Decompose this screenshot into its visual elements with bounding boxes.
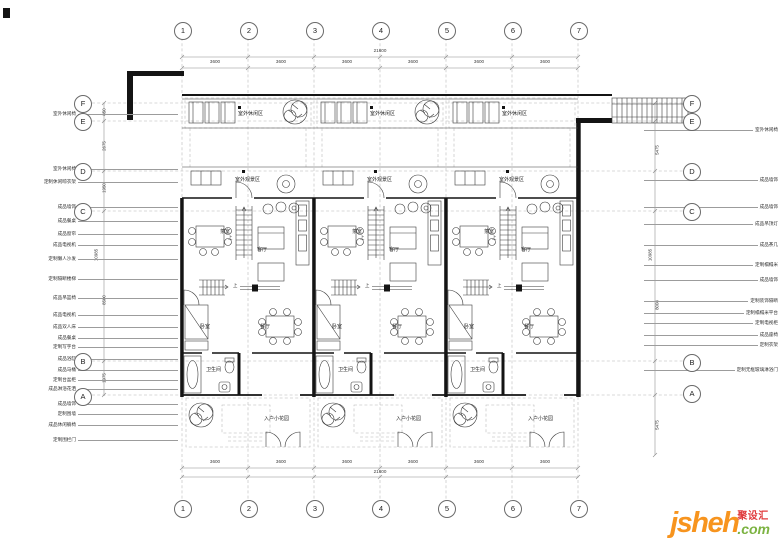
leader-line [78, 338, 178, 339]
grid-bubble-col-2: 2 [240, 22, 258, 40]
room-label-bedroom: 卧室 [200, 323, 210, 330]
leader-line [644, 130, 753, 131]
room-label-dining: 餐厅 [524, 323, 534, 330]
watermark-logo: jsheh 聚设汇 .com [670, 510, 770, 536]
grid-bubble-col-4-bottom: 4 [372, 500, 390, 518]
grid-bubble-col-4: 4 [372, 22, 390, 40]
grid-bubble-col-5: 5 [438, 22, 456, 40]
room-label-living: 客厅 [257, 246, 267, 253]
annotation-label: 成品吊篮椅 [2, 295, 76, 301]
annotation-label: 定制隔断楼梯 [2, 276, 76, 282]
annotation-row: 成品电视机 [2, 312, 180, 318]
leader-line [644, 301, 748, 302]
leader-line [78, 221, 178, 222]
leader-line [644, 313, 744, 314]
leader-line [78, 347, 178, 348]
annotation-label: 成品墙饰 [760, 277, 778, 283]
stair-up-label: 上 [228, 235, 232, 241]
leader-line [644, 323, 753, 324]
leader-line [78, 182, 178, 183]
room-label-outdoor-leisure: 室外休闲区 [502, 110, 527, 117]
annotation-label: 成品墙饰 [2, 204, 76, 210]
annotation-label: 定制无框玻璃淋浴门 [737, 367, 778, 373]
leader-line [78, 207, 178, 208]
grid-bubble-col-7: 7 [570, 22, 588, 40]
annotation-label: 定制台盆柜 [2, 377, 76, 383]
leader-line [78, 389, 178, 390]
room-label-outdoor-leisure: 室外休闲区 [238, 110, 263, 117]
leader-line [644, 345, 758, 346]
grid-bubble-col-2-bottom: 2 [240, 500, 258, 518]
annotation-label: 成品浴缸 [2, 356, 76, 362]
annotation-row: 定制无框玻璃淋浴门 [642, 367, 778, 373]
watermark-domain: .com [737, 522, 770, 536]
annotation-label: 室外休闲椅 [2, 166, 76, 172]
annotation-label: 定制围栏门 [2, 437, 76, 443]
grid-bubble-row-D-right: D [683, 163, 701, 181]
leader-line [78, 404, 178, 405]
grid-bubble-row-F-right: F [683, 95, 701, 113]
annotation-row: 成品墙饰 [2, 401, 180, 407]
annotation-label: 定制衣架 [760, 342, 778, 348]
annotation-row: 室外休闲椅 [642, 127, 778, 133]
grid-bubble-row-E-right: E [683, 113, 701, 131]
leader-line [644, 335, 758, 336]
room-label-bath: 卫生间 [206, 366, 221, 373]
annotation-label: 定制写字台 [2, 344, 76, 350]
room-label-tea: 茶室 [220, 228, 230, 235]
annotation-label: 成品吊顶灯 [755, 221, 778, 227]
leader-line [78, 259, 178, 260]
leader-line [78, 245, 178, 246]
annotation-row: 成品座椅 [642, 332, 778, 338]
annotation-label: 定制榻榻米平台 [746, 310, 778, 316]
leader-line [78, 234, 178, 235]
annotation-label: 成品淋浴花洒 [2, 386, 76, 392]
annotation-row: 成品茶几 [642, 242, 778, 248]
annotation-label: 成品茶几 [760, 242, 778, 248]
annotation-row: 成品餐桌 [2, 335, 180, 341]
room-label-living: 客厅 [521, 246, 531, 253]
annotation-row: 成品吊顶灯 [642, 221, 778, 227]
stair-up-label: 上 [233, 283, 237, 289]
grid-bubble-row-A-right: A [683, 385, 701, 403]
grid-bubble-row-D: D [74, 163, 92, 181]
room-label-outdoor-leisure: 室外休闲区 [370, 110, 395, 117]
bay-dim: 3600 [342, 59, 352, 64]
annotation-row: 定制隔断楼梯 [2, 276, 180, 282]
grid-bubble-col-6-bottom: 6 [504, 500, 522, 518]
total-dim-bottom: 21600 [350, 469, 410, 474]
leader-line [78, 440, 178, 441]
annotation-row: 室外休闲椅 [2, 111, 180, 117]
leader-line [644, 245, 758, 246]
vertical-dim: 5475 [655, 420, 660, 430]
annotation-row: 成品双人床 [2, 324, 180, 330]
annotation-label: 定制电视柜 [755, 320, 778, 326]
grid-bubble-row-F: F [74, 95, 92, 113]
grid-bubble-col-3-bottom: 3 [306, 500, 324, 518]
leader-line [78, 298, 178, 299]
annotation-row: 成品墙饰 [642, 177, 778, 183]
grid-bubble-col-6: 6 [504, 22, 522, 40]
annotation-label: 成品双人床 [2, 324, 76, 330]
stair-up-label: 上 [365, 283, 369, 289]
annotation-label: 定制懒人沙发 [2, 256, 76, 262]
annotation-row: 定制台盆柜 [2, 377, 180, 383]
annotation-label: 成品电视机 [2, 312, 76, 318]
room-label-garden: 入户小花园 [396, 415, 421, 422]
leader-line [78, 315, 178, 316]
annotation-label: 成品窗帘 [2, 231, 76, 237]
annotation-label: 成品电视机 [2, 242, 76, 248]
exterior-stair-hatch [612, 98, 688, 123]
room-label-bedroom: 卧室 [464, 323, 474, 330]
room-label-living: 客厅 [389, 246, 399, 253]
annotation-row: 定制围墙 [2, 411, 180, 417]
annotation-label: 成品餐桌 [2, 335, 76, 341]
grid-bubble-col-1-bottom: 1 [174, 500, 192, 518]
annotation-row: 定制榻榻米 [642, 262, 778, 268]
stair-up-label: 上 [492, 235, 496, 241]
annotation-label: 室外休闲椅 [2, 111, 76, 117]
leader-line [78, 380, 178, 381]
annotation-label: 定制休闲晾衣架 [2, 179, 76, 185]
bay-dim: 3600 [210, 59, 220, 64]
annotation-row: 成品淋浴花洒 [2, 386, 180, 392]
room-label-tea: 茶室 [484, 228, 494, 235]
leader-line [78, 359, 178, 360]
annotation-row: 成品吊篮椅 [2, 295, 180, 301]
annotation-label: 成品休闲躺椅 [2, 422, 76, 428]
unit-2-labels: 室外休闲区 室外观景区 茶室 客厅 上 上 卧室 餐厅 卫生间 入户小花园 [314, 95, 446, 460]
bay-dim: 3600 [276, 59, 286, 64]
grid-bubble-row-B-right: B [683, 354, 701, 372]
unit-1-labels: 室外休闲区 室外观景区 茶室 客厅 上 上 卧室 餐厅 卫生间 入户小花园 [182, 95, 314, 460]
leader-line [78, 370, 178, 371]
stair-up-label: 上 [497, 283, 501, 289]
annotation-row: 定制懒人沙发 [2, 256, 180, 262]
annotation-row: 成品餐桌 [2, 218, 180, 224]
room-label-garden: 入户小花园 [264, 415, 289, 422]
room-label-dining: 餐厅 [392, 323, 402, 330]
vertical-dim: 10985 [648, 249, 653, 261]
annotation-label: 成品墙饰 [2, 401, 76, 407]
leader-line [644, 207, 758, 208]
annotation-label: 成品墙饰 [760, 204, 778, 210]
annotation-label: 成品马桶 [2, 367, 76, 373]
annotation-label: 定制围墙 [2, 411, 76, 417]
annotation-row: 定制围栏门 [2, 437, 180, 443]
annotation-row: 成品墙饰 [642, 204, 778, 210]
room-label-dining: 餐厅 [260, 323, 270, 330]
total-dim-top: 21600 [350, 48, 410, 53]
room-label-outdoor-view: 室外观景区 [367, 176, 392, 183]
watermark-brand: jsheh [670, 510, 738, 536]
annotation-label: 成品墙饰 [760, 177, 778, 183]
grid-bubble-row-A: A [74, 388, 92, 406]
vertical-dim: 5475 [655, 145, 660, 155]
grid-bubble-col-7-bottom: 7 [570, 500, 588, 518]
annotation-row: 成品休闲躺椅 [2, 422, 180, 428]
grid-bubble-row-C-right: C [683, 203, 701, 221]
room-label-tea: 茶室 [352, 228, 362, 235]
annotation-row: 定制电视柜 [642, 320, 778, 326]
room-label-outdoor-view: 室外观景区 [499, 176, 524, 183]
bay-dim: 3600 [540, 59, 550, 64]
leader-line [644, 224, 753, 225]
room-label-outdoor-view: 室外观景区 [235, 176, 260, 183]
leader-line [78, 114, 178, 115]
bay-dim: 3600 [474, 59, 484, 64]
leader-line [644, 265, 753, 266]
annotation-row: 成品窗帘 [2, 231, 180, 237]
leader-line [644, 180, 758, 181]
grid-bubble-row-C: C [74, 203, 92, 221]
grid-bubble-col-1: 1 [174, 22, 192, 40]
annotation-row: 成品马桶 [2, 367, 180, 373]
grid-bubble-row-E: E [74, 113, 92, 131]
stair-up-label: 上 [360, 235, 364, 241]
annotation-row: 定制休闲晾衣架 [2, 179, 180, 185]
annotation-row: 定制写字台 [2, 344, 180, 350]
leader-line [78, 425, 178, 426]
bay-dim: 3600 [408, 59, 418, 64]
grid-bubble-row-B: B [74, 353, 92, 371]
annotation-label: 成品餐桌 [2, 218, 76, 224]
leader-line [644, 280, 758, 281]
annotation-label: 室外休闲椅 [755, 127, 778, 133]
floorplan-page: 1 2 3 4 5 6 7 1 2 3 4 5 6 7 F E D C B A … [0, 0, 780, 538]
room-label-bath: 卫生间 [338, 366, 353, 373]
annotation-row: 定制衣架 [642, 342, 778, 348]
annotation-label: 定制榻榻米 [755, 262, 778, 268]
leader-line [78, 327, 178, 328]
grid-bubble-col-3: 3 [306, 22, 324, 40]
room-label-bedroom: 卧室 [332, 323, 342, 330]
annotation-row: 定制榻榻米平台 [642, 310, 778, 316]
grid-bubble-col-5-bottom: 5 [438, 500, 456, 518]
leader-line [78, 279, 178, 280]
leader-line [78, 414, 178, 415]
room-label-garden: 入户小花园 [528, 415, 553, 422]
annotation-label: 定制装饰隔断 [750, 298, 778, 304]
unit-3-labels: 室外休闲区 室外观景区 茶室 客厅 上 上 卧室 餐厅 卫生间 入户小花园 [446, 95, 578, 460]
vertical-dim: 2675 [102, 141, 107, 151]
annotation-label: 成品座椅 [760, 332, 778, 338]
room-label-bath: 卫生间 [470, 366, 485, 373]
leader-line [78, 169, 178, 170]
annotation-row: 成品墙饰 [642, 277, 778, 283]
annotation-row: 成品电视机 [2, 242, 180, 248]
annotation-row: 定制装饰隔断 [642, 298, 778, 304]
